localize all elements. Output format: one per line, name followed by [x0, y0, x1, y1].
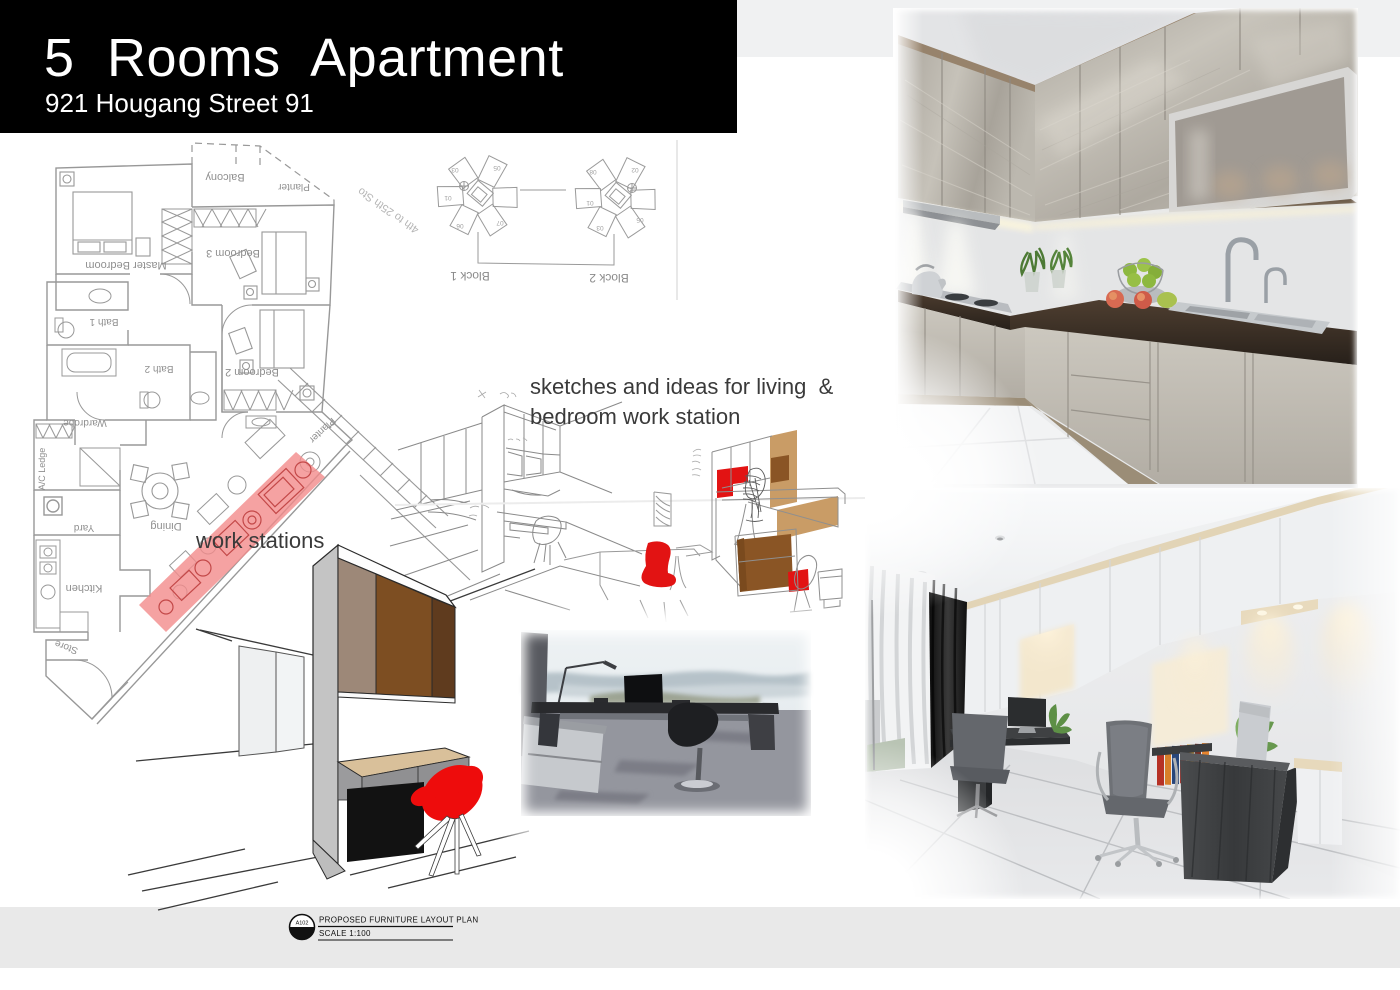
- svg-text:Master Bedroom: Master Bedroom: [85, 259, 166, 271]
- svg-text:08: 08: [589, 168, 597, 175]
- svg-text:03: 03: [451, 166, 459, 173]
- svg-text:SCALE 1:100: SCALE 1:100: [319, 929, 371, 938]
- svg-text:A/C Ledge: A/C Ledge: [37, 448, 47, 491]
- svg-text:Balcony: Balcony: [205, 171, 245, 183]
- svg-text:03: 03: [596, 224, 604, 231]
- svg-text:07: 07: [496, 219, 504, 226]
- svg-text:PROPOSED FURNITURE LAYOUT PLAN: PROPOSED FURNITURE LAYOUT PLAN: [319, 916, 478, 925]
- svg-text:01: 01: [586, 199, 594, 206]
- svg-text:Bath 1: Bath 1: [89, 316, 118, 327]
- svg-text:Block 1: Block 1: [450, 269, 490, 283]
- svg-text:05: 05: [636, 216, 644, 223]
- svg-text:Kitchen: Kitchen: [66, 582, 103, 594]
- svg-text:Bedroom 3: Bedroom 3: [206, 247, 260, 259]
- svg-text:4th to 25th Sto: 4th to 25th Sto: [356, 185, 422, 236]
- svg-text:01: 01: [444, 194, 452, 201]
- svg-text:Block 2: Block 2: [589, 271, 629, 285]
- svg-text:Wardrobe: Wardrobe: [63, 417, 107, 428]
- svg-text:02: 02: [631, 166, 639, 173]
- svg-text:Planter: Planter: [277, 181, 309, 192]
- svg-text:A102: A102: [296, 921, 309, 927]
- svg-text:06: 06: [456, 222, 464, 229]
- svg-text:Yard: Yard: [74, 522, 94, 533]
- svg-text:05: 05: [493, 164, 501, 171]
